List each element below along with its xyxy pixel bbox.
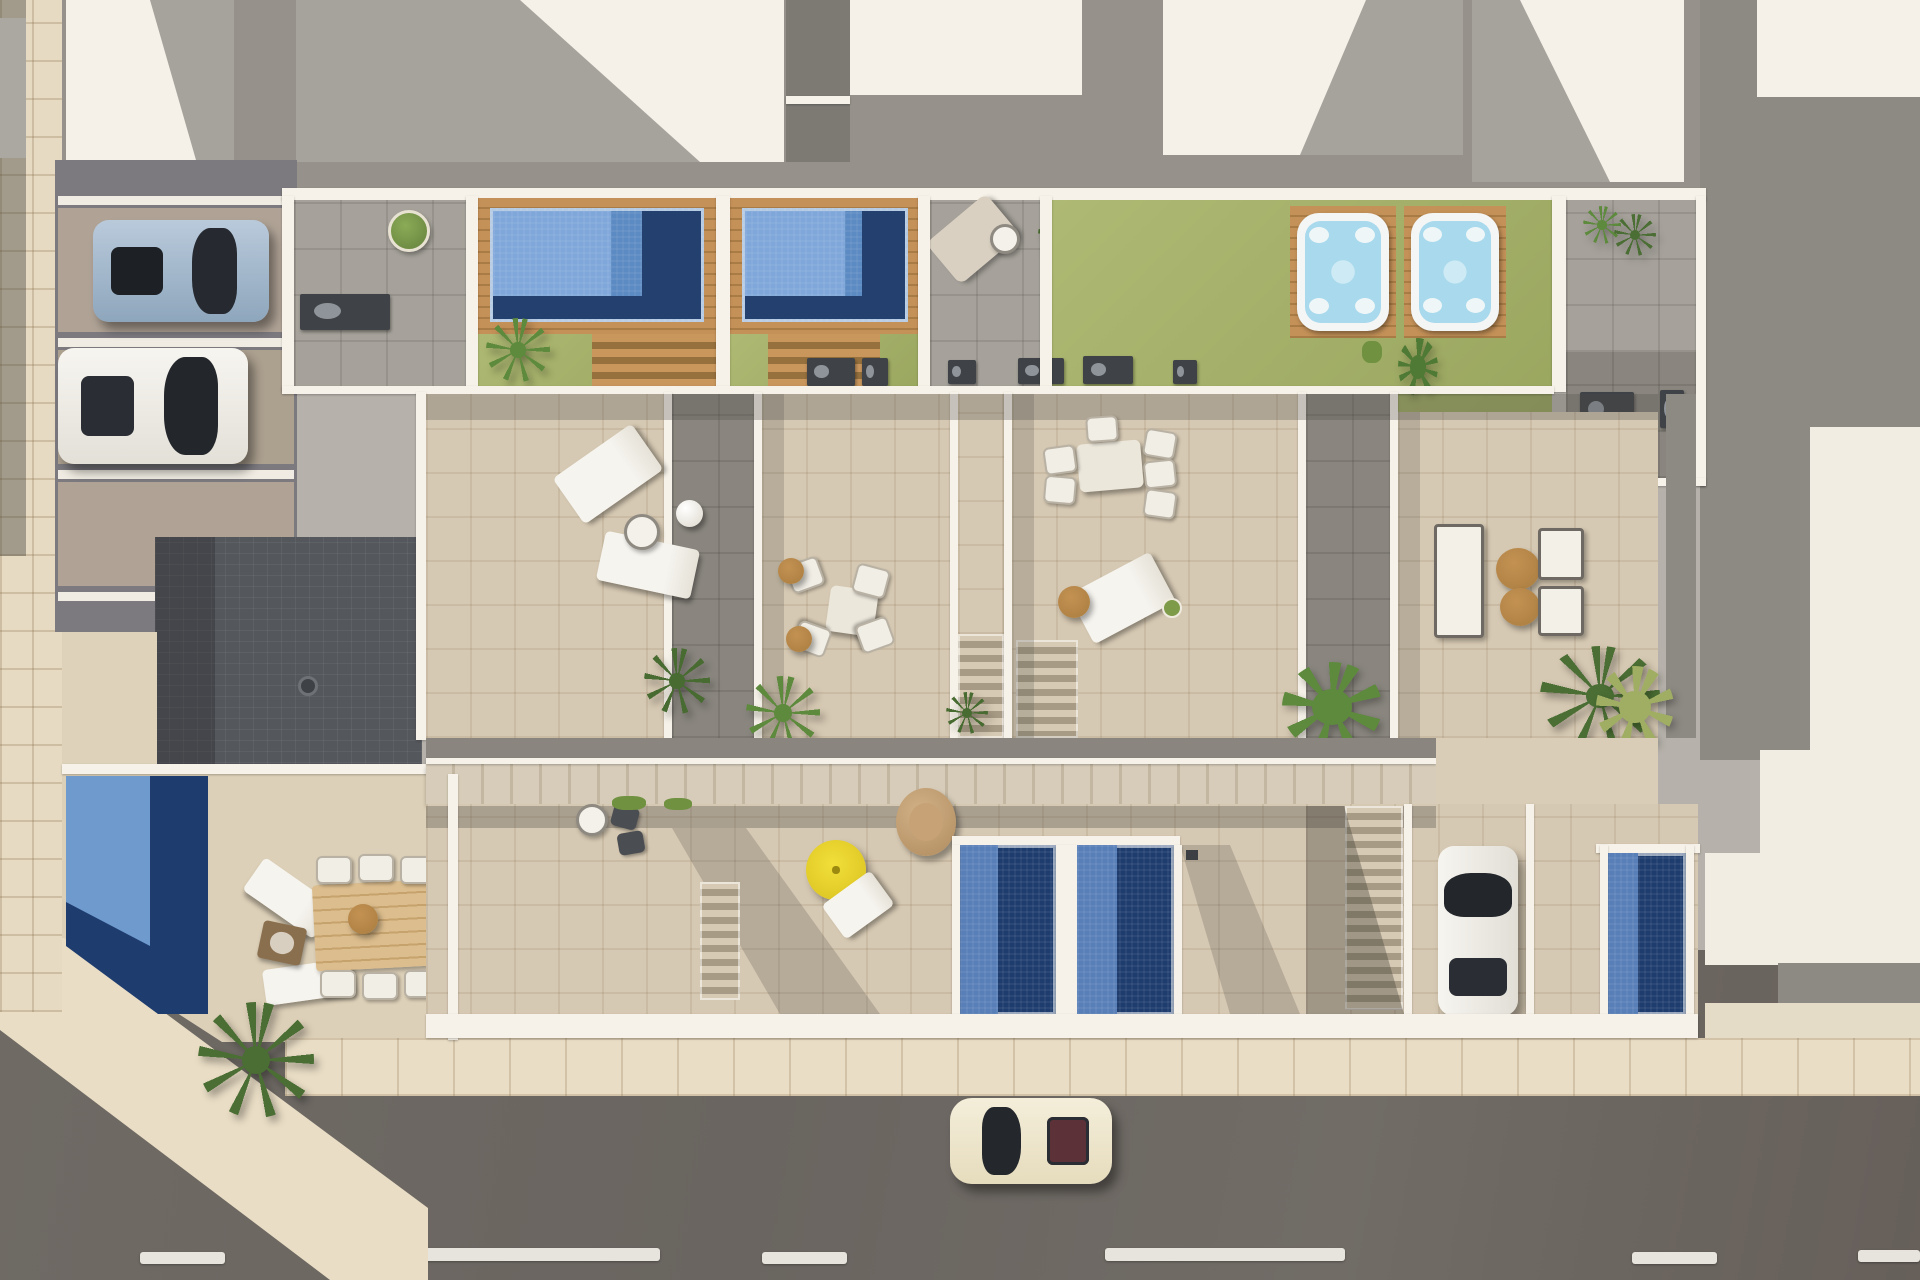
terrace3-chair [1043, 475, 1077, 506]
hot-tub-1-seat [1309, 227, 1329, 243]
terrace3-chair [1042, 444, 1078, 476]
roof-kitchen-unit [807, 358, 855, 386]
pool1-deep-edge [493, 296, 701, 319]
pool1-wood-steps [592, 334, 716, 392]
terrace2-wicker-chair [786, 626, 812, 652]
roof-stair-gap [786, 0, 850, 162]
garden-chair [358, 854, 394, 882]
bistro-chair [616, 830, 645, 856]
garden-wall [62, 764, 454, 774]
plunge-pool-c-wall [1596, 844, 1700, 853]
hot-tub-1-seat [1355, 227, 1375, 243]
pergola-plant [612, 796, 646, 810]
roof-kitchen-unit [1083, 356, 1133, 384]
road-lane-dash [1632, 1252, 1717, 1264]
pool1-garden-tree [486, 318, 550, 382]
ground-stairs [700, 882, 740, 1000]
bistro-table [576, 804, 608, 836]
garden-chair [316, 856, 352, 884]
terrace3-potted-plant [1162, 598, 1182, 618]
parking-stall-line [58, 196, 294, 205]
roof-gap-ledge [786, 96, 850, 104]
terrace1-ball-lamp [676, 500, 703, 527]
courtyard-pavement [62, 632, 157, 772]
road-lane-dash [1105, 1248, 1345, 1261]
garden-strip-wall [1040, 196, 1052, 392]
garden-strip-wall [1552, 196, 1566, 392]
terrace4-round-table [1496, 548, 1540, 590]
sidewalk-horizontal [285, 1038, 1920, 1096]
parked-car-white [58, 348, 248, 464]
bottom-right-roof-notch [1778, 963, 1920, 1003]
roof-slab [850, 0, 1082, 95]
garden-chair [362, 972, 398, 1000]
bottom-right-roof [1705, 853, 1920, 965]
courtyard-drain [298, 676, 318, 696]
hot-tub-1-seat [1309, 298, 1329, 314]
terrace4-armchair [1538, 586, 1584, 636]
garden-strip-wall [918, 196, 930, 392]
terrace4-light-plant [1596, 666, 1674, 748]
garden-side-wall [448, 774, 458, 1040]
ground-wall [1526, 804, 1534, 1016]
terrace3-chair [1142, 427, 1178, 460]
parked-car-blue [93, 220, 269, 322]
lawn-small-plant [1362, 341, 1382, 363]
roof-kitchen-unit [948, 360, 976, 384]
terrace-side-strip [1666, 394, 1696, 738]
plunge-pool-b-shallow [1077, 845, 1117, 1015]
unit1-outdoor-kitchen [300, 294, 390, 330]
aerial-render-stage: Aerial top-down 3D render of a row of mo… [0, 0, 1920, 1280]
garden-strip-ledge [282, 386, 1554, 394]
driveway-head [1436, 738, 1658, 804]
garden-strip-wall [466, 196, 478, 392]
terrace-wall [950, 392, 958, 740]
hot-tub-2-seat [1423, 227, 1442, 242]
plunge-pool-a-shallow [960, 845, 998, 1015]
terrace2-small-palm [946, 692, 988, 734]
bottom-right-roof [1760, 750, 1920, 860]
hanging-egg-chair [896, 788, 956, 856]
hot-tub-1-seat [1355, 298, 1375, 314]
road-lane-dash [140, 1252, 225, 1264]
bottom-right-roof [1705, 1003, 1920, 1038]
plunge-pool-c-shallow [1608, 853, 1638, 1015]
hot-tub-2-seat [1423, 298, 1442, 313]
garden-strip-wall [716, 196, 730, 392]
hot-tub-2-seat [1466, 227, 1485, 242]
plunge-pool-wall-top [952, 836, 1180, 845]
terrace3-chair [1143, 458, 1178, 489]
plunge-pool-divider [1056, 845, 1077, 1015]
terrace-wall [416, 392, 426, 740]
terrace3-dining-table [1076, 439, 1144, 492]
pergola-plant [664, 798, 692, 810]
terrace3-wicker-fan [1058, 586, 1090, 618]
parking-stall-line [58, 338, 294, 347]
roof-slab [1757, 0, 1920, 97]
ground-wall [1174, 845, 1182, 1015]
ground-door-mark [1186, 850, 1198, 860]
terrace1-side-table [624, 514, 660, 550]
garden-chair [320, 970, 356, 998]
terrace3-chair [1142, 488, 1178, 520]
pool2-deep-edge [745, 296, 905, 319]
road-lane-dash [762, 1252, 847, 1264]
unit5-patio-palm [1614, 214, 1656, 256]
garden-palm-tree [198, 1002, 314, 1118]
driveway-car-white [1438, 846, 1518, 1016]
ground-wall [1686, 845, 1694, 1015]
walkway-palm [644, 648, 710, 714]
garden-table-decor [348, 904, 378, 934]
terrace4-armchair [1538, 528, 1584, 580]
pool1-shallow [493, 211, 611, 296]
ground-wall [1600, 845, 1608, 1015]
garden-strip-wall [1696, 196, 1706, 486]
pool2-shallow [745, 211, 845, 296]
parking-stall-line [58, 470, 294, 479]
terrace-wall [1390, 392, 1398, 740]
hot-tub-2-seat [1466, 298, 1485, 313]
street-car-cream [950, 1098, 1112, 1184]
roof-kitchen-unit [862, 358, 888, 386]
terrace-wall [1004, 392, 1012, 740]
terrace4-sofa [1434, 524, 1484, 638]
road-lane-dash [420, 1248, 660, 1261]
ground-wall [1404, 804, 1412, 1016]
terrace3-chair [1085, 415, 1119, 443]
terrace4-round-table [1500, 588, 1540, 626]
ground-front-wall [426, 1014, 1698, 1038]
right-roof-lower-white [1810, 427, 1920, 757]
unit3-patio-table [990, 224, 1020, 254]
terrace2-wicker-chair [778, 558, 804, 584]
stairwell-landing [958, 394, 1004, 634]
garden-strip-wall [282, 196, 294, 392]
road-lane-dash [1858, 1250, 1920, 1262]
roof-kitchen-unit [1173, 360, 1197, 384]
ground-wall [952, 845, 960, 1015]
unit1-patio-bush [388, 210, 430, 252]
pergola-edge [426, 758, 1436, 764]
